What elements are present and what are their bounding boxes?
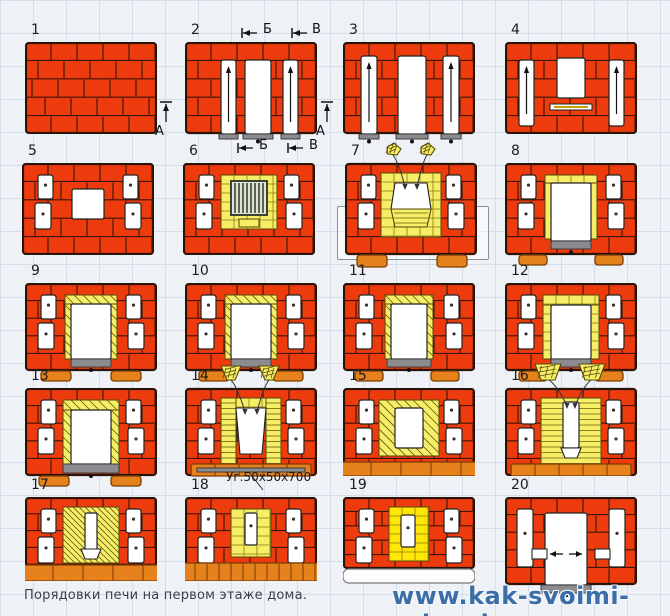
course-number-7: 7 — [351, 143, 360, 159]
course-tile-18 — [185, 497, 317, 581]
course-number-4: 4 — [511, 22, 520, 38]
course-number-14: 14 — [191, 368, 209, 384]
course-7-drawing — [345, 141, 477, 269]
course-3-drawing — [343, 42, 475, 144]
brick-course-diagram-sheet: А А Б В Б В Уг.50x50x700 Порядовки печи … — [0, 0, 670, 616]
steel-angle-label: Уг.50x50x700 — [226, 470, 311, 484]
section-a-mark-left — [157, 100, 175, 124]
diagram-caption: Порядовки печи на первом этаже дома. — [24, 588, 307, 603]
section-b-letter-bottom: Б — [259, 138, 268, 153]
course-number-8: 8 — [511, 143, 520, 159]
section-b-letter-top: Б — [263, 22, 272, 37]
section-a-mark-right — [318, 100, 336, 124]
course-15-drawing — [343, 388, 475, 476]
section-v-letter-bottom: В — [309, 138, 318, 153]
section-a-letter-right: А — [316, 124, 325, 139]
course-4-drawing — [505, 42, 637, 134]
course-number-19: 19 — [349, 477, 367, 493]
section-v-letter-top: В — [312, 22, 321, 37]
course-number-9: 9 — [31, 263, 40, 279]
course-2-drawing — [185, 42, 317, 144]
section-b-mark-top — [240, 27, 260, 39]
course-18-drawing — [185, 497, 317, 581]
site-watermark: www.kak-svoimi-rukami.com — [392, 582, 670, 616]
course-19-drawing — [343, 497, 475, 585]
course-number-12: 12 — [511, 263, 529, 279]
course-number-1: 1 — [31, 22, 40, 38]
course-tile-6 — [183, 163, 315, 255]
course-13-drawing — [25, 388, 157, 488]
course-8-drawing — [505, 163, 637, 267]
course-number-10: 10 — [191, 263, 209, 279]
course-tile-13 — [25, 388, 157, 488]
course-tile-5 — [22, 163, 154, 255]
section-b-mark-bottom — [236, 142, 256, 154]
course-number-15: 15 — [349, 368, 367, 384]
course-1-drawing — [25, 42, 157, 134]
course-17-drawing — [25, 497, 157, 581]
course-number-5: 5 — [28, 143, 37, 159]
course-tile-15 — [343, 388, 475, 476]
course-tile-19 — [343, 497, 475, 585]
course-5-drawing — [22, 163, 154, 255]
course-tile-7 — [345, 141, 477, 269]
course-number-6: 6 — [189, 143, 198, 159]
course-number-13: 13 — [31, 368, 49, 384]
course-number-3: 3 — [349, 22, 358, 38]
course-tile-4 — [505, 42, 637, 134]
course-tile-17 — [25, 497, 157, 581]
course-number-18: 18 — [191, 477, 209, 493]
course-tile-8 — [505, 163, 637, 267]
course-6-drawing — [183, 163, 315, 255]
course-tile-3 — [343, 42, 475, 144]
section-a-letter-left: А — [155, 124, 164, 139]
course-number-16: 16 — [511, 368, 529, 384]
course-number-11: 11 — [349, 263, 367, 279]
course-tile-2 — [185, 42, 317, 144]
course-number-20: 20 — [511, 477, 529, 493]
course-number-2: 2 — [191, 22, 200, 38]
section-v-mark-bottom — [286, 142, 306, 154]
section-v-mark-top — [290, 27, 310, 39]
course-tile-1 — [25, 42, 157, 134]
course-number-17: 17 — [31, 477, 49, 493]
